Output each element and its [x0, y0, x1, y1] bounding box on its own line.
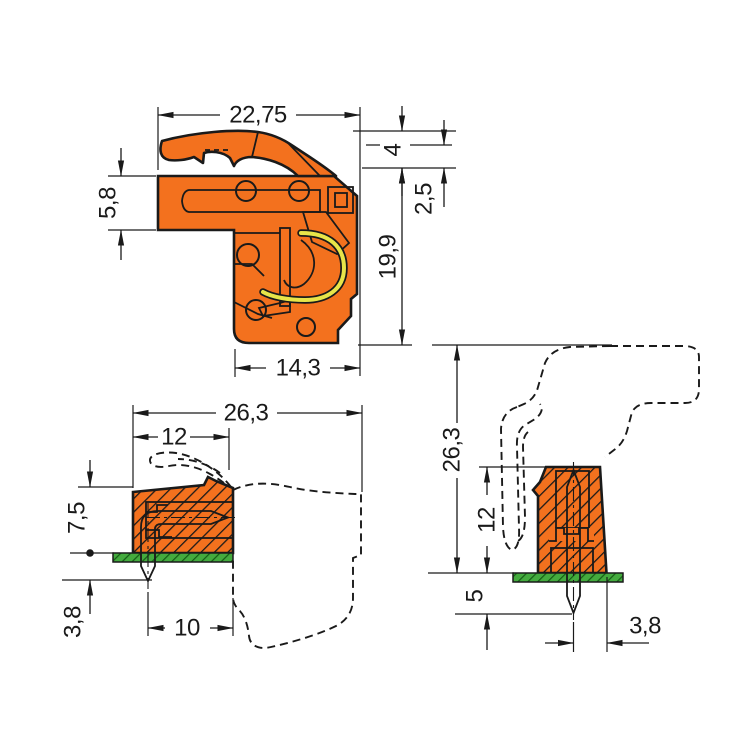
dim-label-upper-section-height: 5,8: [95, 187, 122, 219]
dim-label-vertical-header-height: 12: [474, 507, 501, 533]
dim-pin-below-pcb: 3,8: [60, 580, 91, 638]
dim-body-height: 19,9: [375, 168, 403, 345]
dim-label-overall-height: 26,3: [439, 427, 466, 472]
dim-label-overall-width: 22,75: [229, 102, 287, 129]
technical-drawing: 22,75 4 2,5 19,9 5,8: [0, 0, 750, 750]
dim-vertical-pin-below-pcb: 5: [462, 589, 489, 650]
dim-pin-setback: 10: [148, 615, 233, 642]
reference-dot: [86, 549, 94, 557]
dim-height-above-pcb: 7,5: [64, 460, 94, 557]
pcb: [113, 553, 233, 562]
dim-label-pin-to-edge: 3,8: [629, 613, 661, 640]
dim-pin-to-edge: 3,8: [545, 613, 661, 644]
dim-label-pin-below-pcb: 3,8: [60, 606, 87, 638]
vertical-header-body: [533, 467, 607, 573]
dim-label-lower-width: 14,3: [276, 355, 321, 382]
dim-label-vertical-pin-below-pcb: 5: [462, 589, 489, 602]
dim-label-body-height: 19,9: [375, 234, 402, 279]
dim-label-latch-height: 4: [380, 143, 407, 156]
dim-label-strain-relief: 2,5: [411, 183, 438, 215]
view-angled-header-side: 26,3 12 7,5 3,8 10: [60, 400, 363, 648]
view-vertical-header-front: 26,3 12 5 3,8: [428, 345, 699, 652]
dim-header-length: 12: [133, 424, 229, 451]
dim-lower-width: 14,3: [235, 355, 360, 382]
dim-overall-length: 26,3: [133, 400, 362, 427]
technical-drawing-page: 22,75 4 2,5 19,9 5,8: [0, 0, 750, 750]
dim-label-pin-setback: 10: [174, 615, 200, 642]
dim-label-overall-length: 26,3: [224, 400, 269, 427]
dim-label-header-length: 12: [161, 424, 187, 451]
dim-vertical-header-height: 12: [474, 467, 501, 573]
view-side-section: 22,75 4 2,5 19,9 5,8: [95, 102, 457, 382]
dim-upper-section-height: 5,8: [95, 148, 122, 260]
dim-overall-width: 22,75: [158, 102, 360, 129]
latch-hook: [160, 131, 336, 176]
dim-label-height-above-pcb: 7,5: [64, 502, 91, 534]
dim-overall-height: 26,3: [439, 345, 466, 573]
